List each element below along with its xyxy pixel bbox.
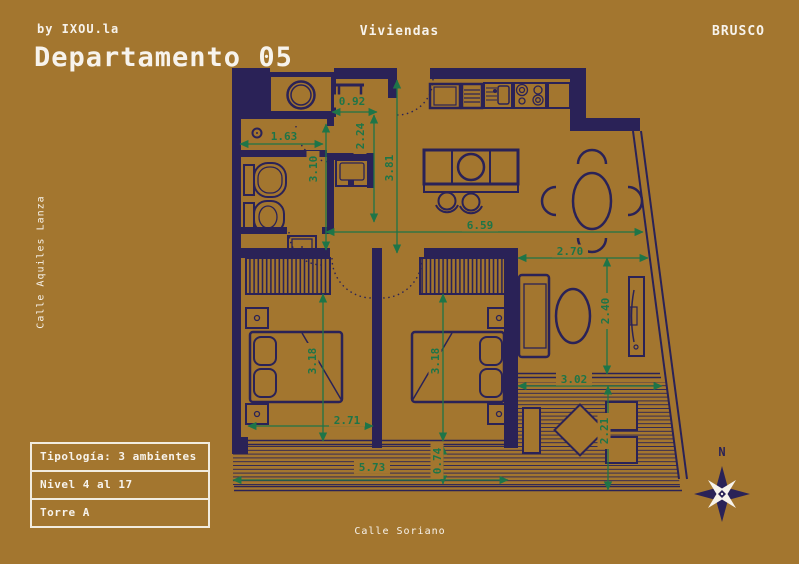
dining-chair: [542, 187, 556, 215]
svg-text:2.24: 2.24: [354, 122, 367, 149]
floor-plan-drawing: 0.921.632.243.103.816.592.702.403.183.18…: [0, 0, 799, 564]
dining-chair: [578, 150, 606, 164]
kitchen-sink: [484, 83, 512, 108]
compass: N: [690, 442, 754, 528]
svg-text:6.59: 6.59: [467, 219, 494, 232]
svg-text:0.92: 0.92: [339, 95, 366, 108]
oven: [462, 84, 482, 108]
tv-unit: [629, 277, 644, 356]
pillow: [254, 337, 276, 365]
bar-stool: [460, 194, 482, 214]
dimension-2.40: 2.40: [599, 258, 613, 374]
fridge: [430, 84, 460, 108]
svg-text:3.10: 3.10: [307, 156, 320, 183]
dimension-3.18: 3.18: [306, 294, 324, 441]
bathroom-fixtures: [244, 129, 368, 259]
sofa: [519, 275, 549, 357]
coffee-table: [556, 289, 590, 343]
double-bed: [250, 332, 342, 402]
floor-plan-page: { "colors": { "background": "#a3762f", "…: [0, 0, 799, 564]
dining-table: [542, 150, 642, 252]
dimension-2.70: 2.70: [518, 245, 648, 259]
svg-text:3.18: 3.18: [429, 348, 442, 375]
dimension-0.74: 0.74: [431, 443, 445, 484]
svg-text:3.02: 3.02: [561, 373, 588, 386]
dimension-3.18: 3.18: [429, 294, 444, 441]
dimension-0.92: 0.92: [332, 95, 377, 113]
counter-end: [548, 83, 570, 108]
svg-text:2.21: 2.21: [598, 417, 611, 444]
svg-text:1.63: 1.63: [271, 130, 298, 143]
svg-text:5.73: 5.73: [359, 461, 386, 474]
double-bed: [412, 332, 504, 402]
living-room-furniture: [519, 275, 644, 357]
compass-north-label: N: [718, 445, 725, 459]
pillow: [480, 369, 502, 397]
svg-text:2.40: 2.40: [599, 298, 612, 325]
ceiling-fixture: [253, 129, 262, 138]
terrace-bench: [523, 408, 540, 453]
entry-door-swing: [397, 79, 433, 115]
kitchen-counter: [430, 83, 570, 108]
washing-machine: [288, 82, 315, 109]
nightstand: [246, 308, 268, 328]
toilet: [244, 163, 286, 197]
dining-chair: [628, 187, 642, 215]
bedroom-1-door-swing: [332, 258, 372, 298]
nightstand: [246, 404, 268, 424]
svg-text:3.81: 3.81: [383, 154, 396, 181]
bedroom-2-door-swing: [382, 258, 422, 298]
stove: [514, 83, 546, 108]
kitchen-island: [424, 150, 518, 213]
pillow: [480, 337, 502, 365]
svg-text:3.18: 3.18: [306, 348, 319, 375]
bedroom-1-furniture: [246, 308, 342, 424]
svg-text:2.70: 2.70: [557, 245, 584, 258]
svg-text:0.74: 0.74: [431, 447, 444, 474]
pillow: [254, 369, 276, 397]
svg-text:2.71: 2.71: [334, 414, 361, 427]
bedroom-2-furniture: [412, 308, 510, 424]
dimension-3.81: 3.81: [383, 80, 398, 253]
bar-stool: [436, 193, 458, 213]
compass-center-dot: [721, 493, 723, 495]
hall-sink: [336, 160, 368, 186]
